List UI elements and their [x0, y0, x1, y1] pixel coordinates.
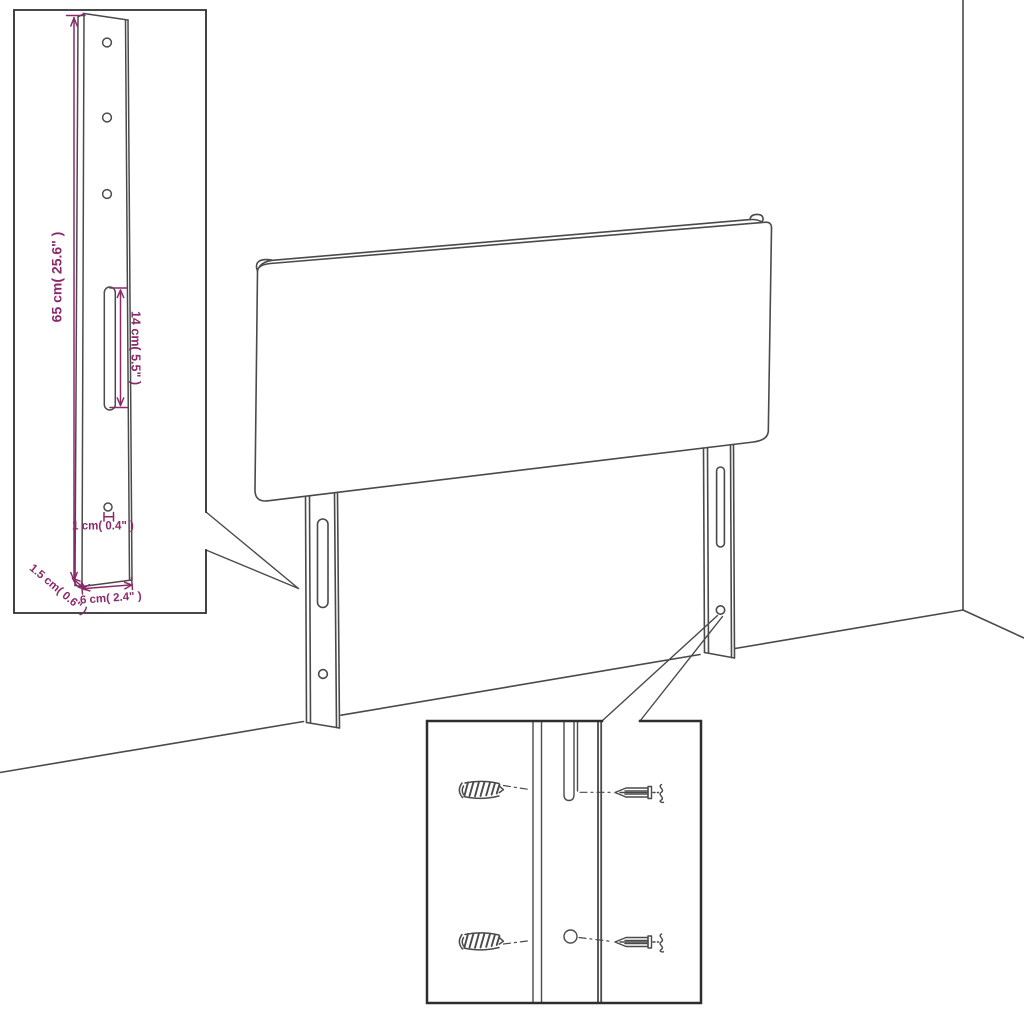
leg-edge	[335, 493, 337, 728]
leg-edge	[731, 445, 732, 658]
main-drawing	[0, 0, 1024, 1003]
leg-front-left-edge	[82, 14, 84, 587]
alignment-dashed-lines	[504, 786, 614, 945]
dashed-line	[504, 941, 532, 945]
leg-edge	[734, 444, 735, 658]
headboard-panel	[255, 214, 772, 501]
dim-leg-height: 65 cm( 25.6" )	[49, 16, 86, 582]
leg-top-edge	[84, 14, 128, 21]
dim-label-hole-diameter: 1 cm( 0.4" )	[72, 521, 134, 533]
dim-hole-diameter: 1 cm( 0.4" )	[72, 513, 134, 533]
room-corner	[0, 0, 1024, 773]
leg-bottom-edge	[705, 653, 735, 659]
dashed-line	[579, 938, 612, 942]
leg-screw-hole	[319, 670, 328, 679]
diagram-canvas: 65 cm( 25.6" ) 14 cm( 5.5" ) 1 cm( 0.4" …	[0, 0, 1024, 1024]
callout-line	[206, 550, 299, 589]
dim-label-slot-length: 14 cm( 5.5" )	[129, 311, 143, 385]
leg-slot	[104, 287, 115, 410]
leg-mounting-slot	[318, 519, 329, 608]
callout-connectors-left-inset	[206, 512, 299, 589]
leg-small-hole	[104, 503, 112, 511]
leg-side-edge	[75, 17, 78, 586]
leg-mounting-slot	[717, 467, 725, 547]
dim-label-leg-width: 6 cm( 2.4" )	[80, 590, 143, 606]
leg-hole-2	[103, 113, 112, 122]
dim-label-leg-depth: 1.5 cm( 0.6" )	[27, 562, 89, 617]
mounting-screw-top	[615, 785, 664, 803]
leg-hole-3	[103, 190, 112, 199]
mounting-hole	[564, 930, 577, 943]
mounting-screw-bottom	[615, 934, 664, 952]
leg-hole-1	[103, 38, 112, 47]
dim-tick	[132, 578, 133, 590]
floor-line-right	[963, 610, 1024, 638]
leg-edge	[708, 448, 709, 653]
dashed-line	[504, 786, 532, 790]
dim-label-leg-height: 65 cm( 25.6" )	[49, 232, 65, 323]
leg-edge	[310, 496, 311, 723]
inset-mounting-detail	[459, 721, 663, 1003]
headboard-dimension-diagram: 65 cm( 25.6" ) 14 cm( 5.5" ) 1 cm( 0.4" …	[0, 0, 1024, 1024]
dim-leg-depth: 1.5 cm( 0.6" )	[27, 562, 89, 617]
wall-plug-screw-top	[459, 781, 503, 798]
floor-line-left	[0, 610, 963, 773]
wall-plug-screw-bottom	[459, 933, 503, 950]
inset-leg-detail	[75, 14, 132, 587]
keyhole-slot	[564, 721, 574, 801]
leg-edge	[338, 493, 340, 728]
callout-line	[640, 617, 723, 722]
callout-line	[206, 512, 299, 589]
leg-bottom-edge	[307, 723, 340, 729]
leg-screw-hole	[716, 606, 724, 614]
headboard-leg-right	[704, 444, 735, 658]
headboard-leg-left	[306, 493, 340, 728]
panel-outline	[255, 222, 772, 501]
dim-leg-width: 6 cm( 2.4" )	[80, 578, 143, 607]
dimension-annotations: 65 cm( 25.6" ) 14 cm( 5.5" ) 1 cm( 0.4" …	[27, 16, 143, 618]
leg-edge	[306, 497, 307, 723]
leg-edge	[704, 448, 705, 653]
